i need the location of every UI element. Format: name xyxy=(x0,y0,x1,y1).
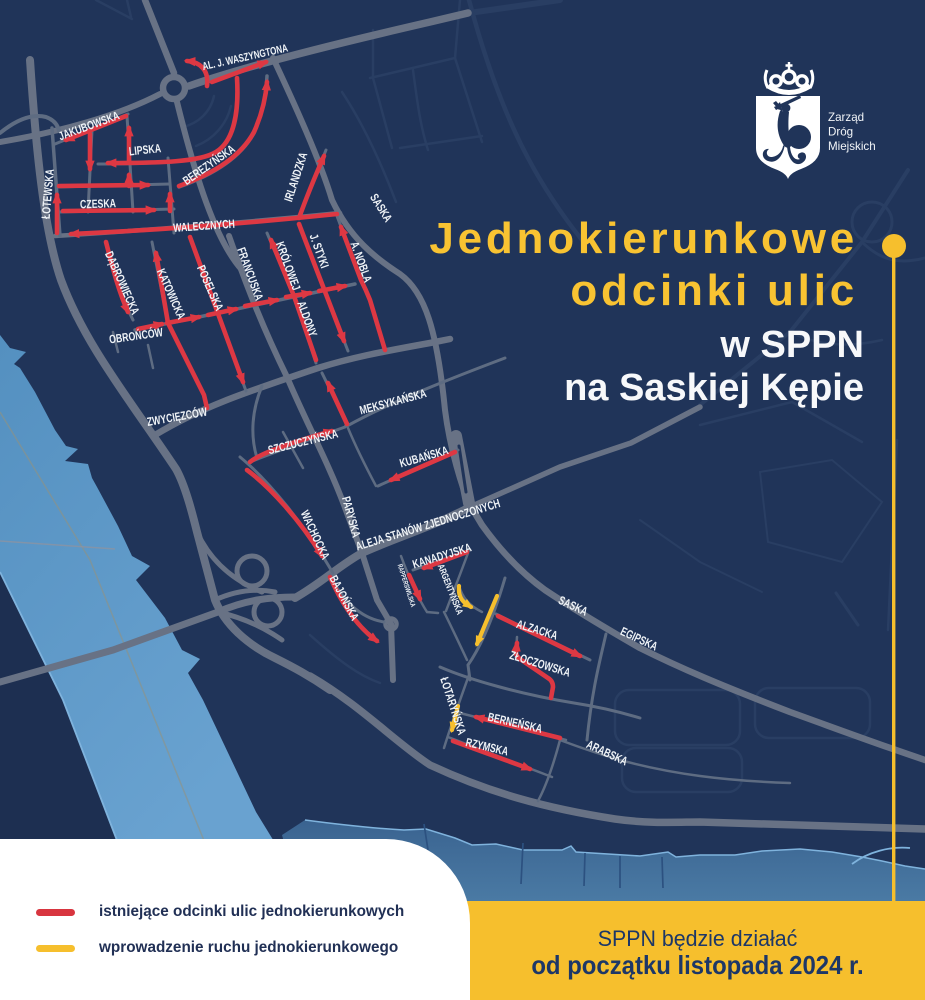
svg-text:CZESKA: CZESKA xyxy=(80,197,117,212)
svg-text:Miejskich: Miejskich xyxy=(828,140,876,153)
svg-text:Zarząd: Zarząd xyxy=(828,111,864,124)
svg-text:Dróg: Dróg xyxy=(828,126,853,139)
